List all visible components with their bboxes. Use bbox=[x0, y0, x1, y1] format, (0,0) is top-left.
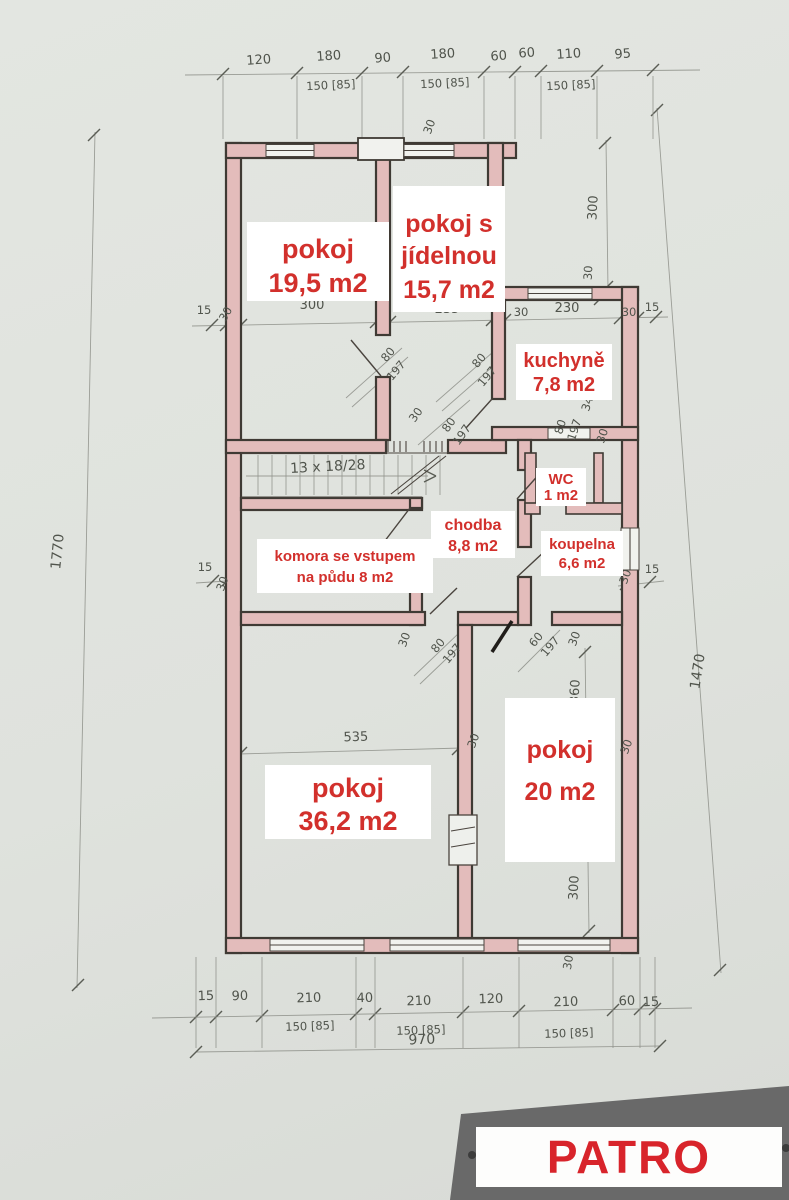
wall bbox=[622, 287, 638, 953]
clip-mark bbox=[468, 1151, 476, 1159]
room-label-kuchyne: kuchyně 7,8 m2 bbox=[516, 344, 612, 400]
dimension-label: 970 bbox=[408, 1032, 435, 1049]
room-name: komora se vstupem bbox=[275, 548, 416, 565]
dimension-label: 150 [85] bbox=[306, 77, 356, 94]
title-block: PATRO bbox=[450, 1086, 789, 1200]
tick-mark bbox=[599, 137, 611, 149]
dimension-label: 90 bbox=[374, 50, 392, 66]
wall bbox=[552, 612, 622, 625]
room-area: 20 m2 bbox=[525, 778, 596, 806]
room-name: pokoj s bbox=[405, 210, 493, 238]
dimension-line bbox=[185, 70, 700, 75]
dimension-label: 30 bbox=[565, 629, 583, 648]
door-leaf bbox=[466, 399, 492, 428]
dimension-label: 30 bbox=[560, 954, 576, 971]
dimension-label: 110 bbox=[556, 46, 582, 63]
dimension-label: 120 bbox=[246, 52, 272, 69]
dimension-label: 1470 bbox=[687, 653, 708, 691]
room-name: pokoj bbox=[527, 736, 594, 764]
dimension-label: 60 bbox=[490, 48, 508, 64]
chimney bbox=[449, 815, 477, 865]
dimension-label: 95 bbox=[614, 46, 632, 62]
stair-note: 13 x 18/28 bbox=[290, 457, 366, 477]
wall bbox=[241, 612, 425, 625]
dimension-label: 150 [85] bbox=[285, 1018, 335, 1034]
dimension-label: 90 bbox=[231, 989, 248, 1005]
room-area: 19,5 m2 bbox=[268, 268, 367, 298]
scanned-floorplan-sheet: 13 x 18/28 120 180 90 180 60 60 110 95 1… bbox=[0, 0, 789, 1200]
dimension-label: 150 [85] bbox=[420, 75, 470, 92]
dimension-label: 120 bbox=[478, 992, 503, 1008]
tick-mark bbox=[535, 65, 547, 77]
staircase: 13 x 18/28 bbox=[241, 453, 505, 497]
dimension-label: 150 [85] bbox=[544, 1025, 594, 1041]
wall bbox=[241, 498, 422, 510]
dimension-label: 15 bbox=[197, 989, 214, 1005]
room-label-pokoj-s-jidelnou: pokoj s jídelnou 15,7 m2 bbox=[393, 186, 505, 312]
dimension-label: 535 bbox=[343, 730, 368, 746]
dimension-label: 30 bbox=[514, 305, 529, 319]
room-area: 36,2 m2 bbox=[298, 806, 397, 836]
dimension-label: 15 bbox=[645, 300, 660, 314]
room-area: 8,8 m2 bbox=[448, 538, 498, 555]
dimension-label: 30 bbox=[420, 117, 438, 136]
dimension-label: 30 bbox=[622, 305, 637, 319]
wall bbox=[458, 625, 472, 938]
dimension-label: 1770 bbox=[48, 533, 68, 570]
wall bbox=[492, 300, 505, 399]
wall bbox=[518, 577, 531, 625]
dimension-label: 180 bbox=[430, 46, 456, 63]
wall bbox=[594, 453, 603, 503]
dimension-label: 300 bbox=[585, 195, 601, 221]
room-area: 15,7 m2 bbox=[403, 276, 495, 304]
room-name: kuchyně bbox=[523, 350, 604, 372]
tick-mark bbox=[88, 129, 100, 141]
room-name: chodba bbox=[445, 517, 502, 534]
room-area: 1 m2 bbox=[544, 487, 578, 504]
room-label-pokoj-20: pokoj 20 m2 bbox=[505, 698, 615, 862]
dimension-label: 40 bbox=[356, 991, 373, 1007]
room-area: 6,6 m2 bbox=[559, 555, 606, 572]
dimension-label: 150 [85] bbox=[546, 77, 596, 94]
door-leaf bbox=[351, 340, 381, 376]
room-area: na půdu 8 m2 bbox=[297, 569, 394, 586]
room-label-komora: komora se vstupem na půdu 8 m2 bbox=[257, 539, 433, 593]
dimension-line bbox=[192, 317, 668, 326]
dimension-line bbox=[152, 1008, 692, 1018]
room-label-pokoj-36-2: pokoj 36,2 m2 bbox=[265, 765, 431, 839]
tick-mark bbox=[72, 979, 84, 991]
room-name: pokoj bbox=[282, 234, 354, 264]
dimension-label: 15 bbox=[642, 995, 659, 1011]
room-name: jídelnou bbox=[400, 242, 497, 270]
door-leaf bbox=[430, 588, 457, 614]
stair-break-line bbox=[398, 456, 446, 494]
dimension-label: 60 bbox=[518, 45, 536, 61]
room-name: koupelna bbox=[549, 536, 616, 553]
dimension-line bbox=[77, 132, 95, 988]
dimension-label: 180 bbox=[316, 48, 342, 65]
dimension-label: 300 bbox=[566, 875, 582, 901]
pier bbox=[358, 138, 404, 160]
wall bbox=[226, 143, 241, 953]
dimension-label: 30 bbox=[581, 265, 596, 280]
tick-mark bbox=[714, 964, 726, 976]
dimension-label: 230 bbox=[555, 301, 580, 316]
tick-mark bbox=[206, 319, 218, 331]
room-name: WC bbox=[549, 471, 574, 488]
dimension-label: 210 bbox=[296, 991, 321, 1007]
dimension-label: 210 bbox=[553, 995, 578, 1011]
dimension-line bbox=[238, 748, 462, 754]
room-label-chodba: chodba 8,8 m2 bbox=[431, 511, 515, 558]
floor-title: PATRO bbox=[547, 1131, 711, 1183]
wall bbox=[376, 377, 390, 440]
room-label-wc: WC 1 m2 bbox=[536, 468, 586, 506]
floorplan-drawing: 13 x 18/28 120 180 90 180 60 60 110 95 1… bbox=[0, 0, 789, 1200]
dimension-label: 30 bbox=[395, 630, 413, 649]
dimension-label: 15 bbox=[197, 303, 212, 317]
dimension-line bbox=[606, 140, 608, 290]
wall bbox=[226, 440, 386, 453]
room-area: 7,8 m2 bbox=[533, 374, 595, 396]
room-label-koupelna: koupelna 6,6 m2 bbox=[541, 531, 623, 576]
dimension-label: 210 bbox=[406, 994, 431, 1010]
dimension-label: 15 bbox=[645, 562, 660, 576]
room-label-pokoj-19-5: pokoj 19,5 m2 bbox=[247, 222, 389, 301]
wall bbox=[410, 498, 422, 508]
dimension-line bbox=[657, 108, 721, 973]
dimension-label: 30 bbox=[406, 405, 426, 425]
dimension-label: 60 bbox=[618, 994, 635, 1010]
dimension-label: 15 bbox=[198, 560, 213, 574]
room-name: pokoj bbox=[312, 773, 384, 803]
